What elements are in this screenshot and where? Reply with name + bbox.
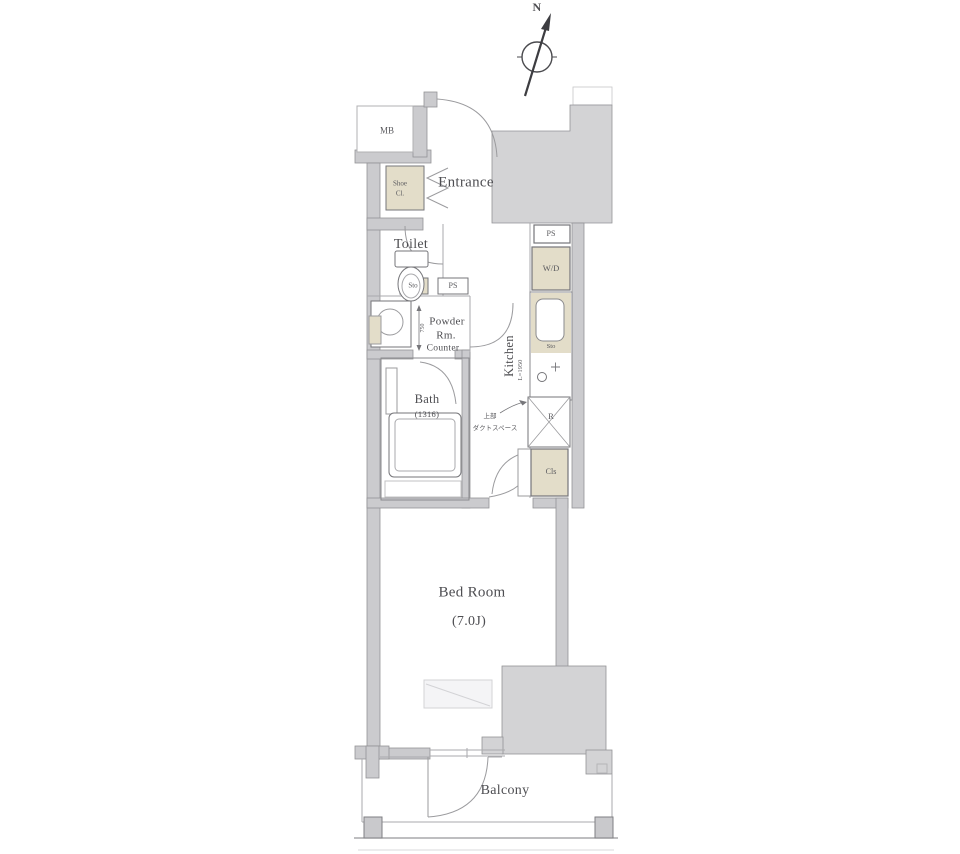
kitchen-sink	[536, 299, 564, 341]
duct-note-line-2: ダクトスペース	[473, 426, 518, 433]
duct-note-line-1: 上部	[484, 414, 497, 421]
pipe-space-kitchen-label: PS	[547, 230, 556, 238]
kitchen-dim-label: L=1950	[518, 360, 525, 381]
bedroom-label: Bed Room	[439, 586, 506, 601]
pipe-space-hall-label: PS	[449, 282, 458, 290]
compass-needle	[525, 21, 548, 96]
dimension-arrow-bottom	[417, 345, 422, 351]
railing-post-left	[364, 817, 382, 838]
bath-counter	[386, 368, 397, 414]
floor-plan-page: N MB Entrance Shoe Cl. Toilet Sto PS PS …	[0, 0, 960, 854]
shoe-closet-box	[386, 166, 424, 210]
counter-label: Counter	[427, 344, 460, 354]
refrigerator-label: R	[548, 412, 554, 421]
toilet-label: Toilet	[394, 238, 428, 252]
bath-size-label: (1316)	[415, 410, 439, 419]
compass-north-label: N	[533, 1, 542, 13]
powder-room-label-1: Powder	[429, 317, 464, 328]
duct-arrow	[500, 402, 525, 413]
compass-arrowhead	[541, 13, 551, 31]
bathtub-inner	[395, 419, 455, 471]
balcony-label: Balcony	[481, 784, 530, 798]
dimension-arrow-top	[417, 305, 422, 311]
powder-side-cabinet	[369, 316, 381, 344]
powder-room-label-2: Rm.	[436, 331, 456, 342]
washer-dryer-label: W/D	[543, 264, 560, 273]
front-door-arc	[437, 99, 497, 157]
entrance-label: Entrance	[438, 176, 494, 191]
toilet-tank	[395, 251, 428, 267]
shoe-closet-label-2: Cl.	[396, 191, 404, 198]
closet-door-panel	[518, 449, 531, 496]
bath-apron	[385, 481, 461, 497]
meter-box-label: MB	[380, 127, 394, 136]
shoe-closet-label-1: Shoe	[393, 181, 407, 188]
balcony-door-arc	[428, 757, 488, 817]
storage-kitchen-label: Sto	[547, 344, 556, 351]
ac-unit	[424, 680, 492, 708]
compass	[517, 13, 557, 96]
closet-label: Cls	[546, 468, 557, 476]
railing-post-right	[595, 817, 613, 838]
bedroom-size-label: (7.0J)	[452, 615, 486, 629]
dimension-label: 750	[420, 324, 426, 333]
bath-label: Bath	[415, 393, 440, 406]
storage-label: Sto	[408, 283, 417, 290]
kitchen-label: Kitchen	[503, 335, 516, 377]
